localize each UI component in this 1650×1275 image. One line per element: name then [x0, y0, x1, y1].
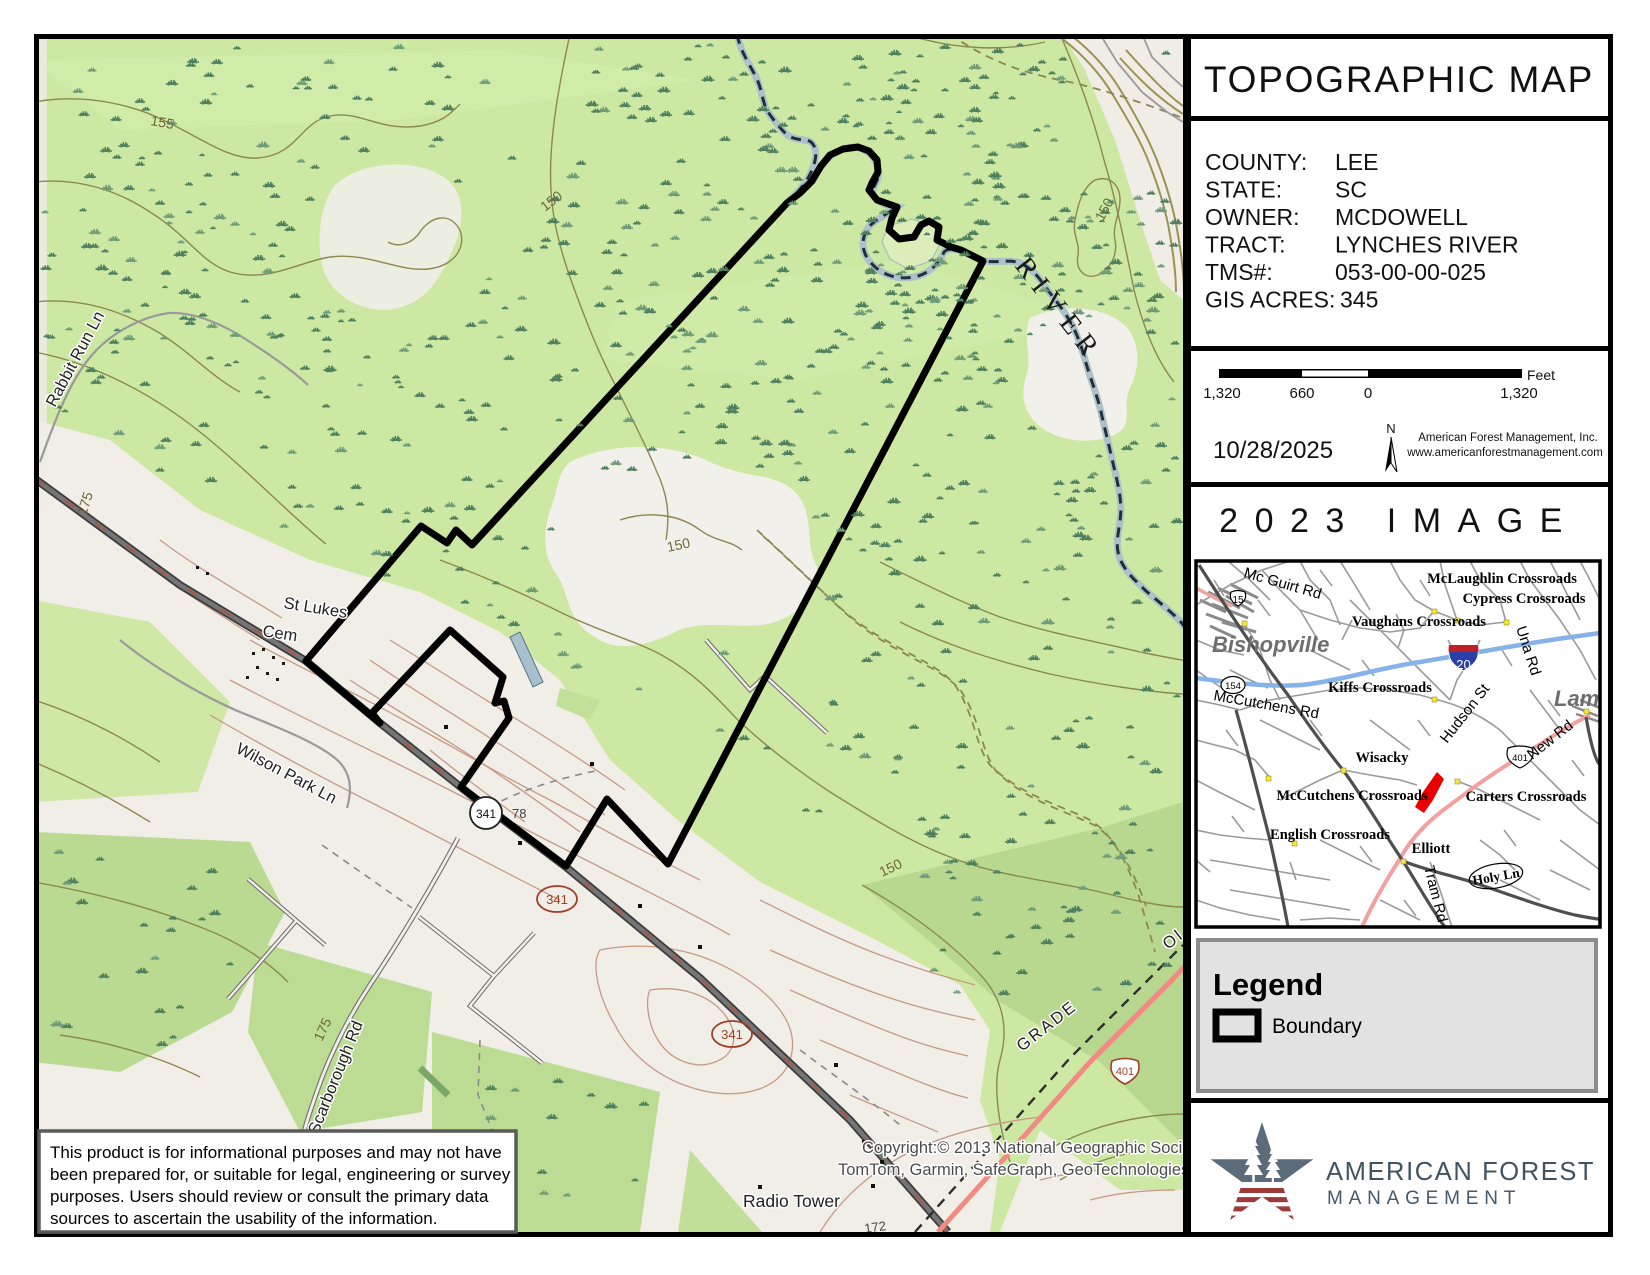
- svg-text:401: 401: [1512, 753, 1528, 764]
- svg-text:20: 20: [1456, 657, 1470, 672]
- svg-text:341: 341: [476, 807, 496, 821]
- svg-text:English Crossroads: English Crossroads: [1270, 827, 1390, 843]
- svg-text:053-00-00-025: 053-00-00-025: [1335, 259, 1486, 285]
- svg-text:Bishopville: Bishopville: [1212, 632, 1329, 657]
- svg-text:www.americanforestmanagement.c: www.americanforestmanagement.com: [1406, 447, 1603, 459]
- svg-text:TRACT:: TRACT:: [1205, 232, 1286, 258]
- svg-text:Legend: Legend: [1213, 967, 1323, 1002]
- svg-text:Radio Tower: Radio Tower: [743, 1191, 840, 1211]
- svg-text:AMERICAN FOREST: AMERICAN FOREST: [1326, 1158, 1595, 1186]
- svg-text:Elliott: Elliott: [1412, 841, 1451, 857]
- svg-text:Cypress Crossroads: Cypress Crossroads: [1463, 591, 1586, 607]
- svg-text:Kiffs Crossroads: Kiffs Crossroads: [1328, 680, 1432, 696]
- svg-text:N: N: [1386, 421, 1395, 436]
- svg-text:MANAGEMENT: MANAGEMENT: [1327, 1188, 1521, 1209]
- svg-text:MCDOWELL: MCDOWELL: [1335, 204, 1468, 230]
- svg-text:This product is for informatio: This product is for informational purpos…: [50, 1143, 502, 1162]
- svg-text:OWNER:: OWNER:: [1205, 204, 1300, 230]
- svg-text:SC: SC: [1335, 177, 1367, 203]
- svg-text:sources to ascertain the usabi: sources to ascertain the usability of th…: [50, 1209, 437, 1228]
- svg-text:341: 341: [546, 892, 568, 907]
- svg-text:660: 660: [1289, 385, 1314, 402]
- svg-text:0: 0: [1364, 385, 1372, 402]
- svg-text:1,320: 1,320: [1203, 385, 1241, 402]
- svg-text:purposes. Users should review: purposes. Users should review or consult…: [50, 1187, 489, 1206]
- svg-text:10/28/2025: 10/28/2025: [1213, 437, 1333, 464]
- svg-text:345: 345: [1340, 287, 1378, 313]
- svg-text:McCutchens Crossroads: McCutchens Crossroads: [1276, 788, 1428, 804]
- svg-text:2023 IMAGE: 2023 IMAGE: [1219, 502, 1579, 540]
- svg-text:Boundary: Boundary: [1272, 1015, 1362, 1038]
- svg-text:401: 401: [1116, 1066, 1134, 1078]
- svg-text:been prepared for, or suitable: been prepared for, or suitable for legal…: [50, 1165, 511, 1184]
- svg-text:LEE: LEE: [1335, 149, 1378, 175]
- svg-text:Copyright:© 2013 National Geog: Copyright:© 2013 National Geographic Soc…: [862, 1139, 1192, 1157]
- svg-text:341: 341: [721, 1027, 743, 1042]
- svg-text:LYNCHES RIVER: LYNCHES RIVER: [1335, 232, 1519, 258]
- svg-text:Carters Crossroads: Carters Crossroads: [1466, 789, 1587, 805]
- svg-text:15: 15: [1232, 595, 1244, 606]
- svg-text:COUNTY:: COUNTY:: [1205, 149, 1307, 175]
- svg-text:TOPOGRAPHIC MAP: TOPOGRAPHIC MAP: [1204, 59, 1594, 100]
- svg-text:1,320: 1,320: [1500, 385, 1538, 402]
- svg-text:TomTom, Garmin, SafeGraph, Geo: TomTom, Garmin, SafeGraph, GeoTechnologi…: [838, 1161, 1194, 1179]
- svg-text:Wisacky: Wisacky: [1356, 750, 1410, 766]
- svg-text:78: 78: [512, 806, 526, 821]
- svg-text:McLaughlin Crossroads: McLaughlin Crossroads: [1427, 571, 1577, 587]
- svg-text:American Forest Management, In: American Forest Management, Inc.: [1418, 432, 1598, 444]
- svg-text:STATE:: STATE:: [1205, 177, 1282, 203]
- svg-text:TMS#:: TMS#:: [1205, 259, 1273, 285]
- svg-text:GIS ACRES:: GIS ACRES:: [1205, 287, 1335, 313]
- svg-text:Feet: Feet: [1527, 367, 1555, 383]
- svg-text:Vaughans Crossroads: Vaughans Crossroads: [1352, 614, 1486, 630]
